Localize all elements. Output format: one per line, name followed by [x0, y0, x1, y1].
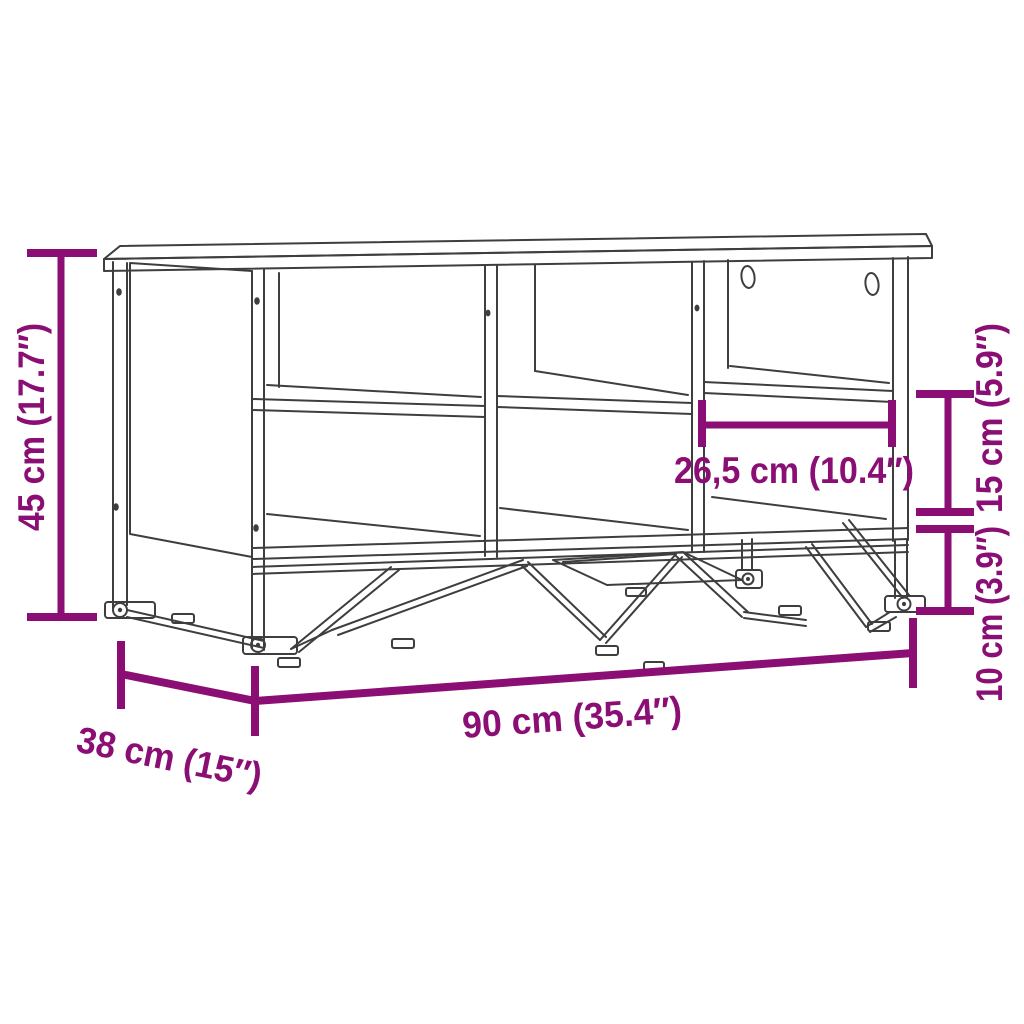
left-side-panel [130, 263, 252, 557]
dimension-overall-width: 90 cm (35.4″) [255, 618, 913, 746]
foot-pad [392, 639, 414, 648]
oval-cutout-left [740, 265, 756, 288]
top-panel [104, 234, 932, 271]
bottom-panel [252, 497, 908, 559]
dimension-overall-height: 45 cm (17.7″) [11, 253, 97, 617]
middle-shelf [252, 265, 893, 417]
screw [253, 524, 259, 532]
back-left-leg [105, 262, 264, 648]
dimension-base-height: 10 cm (3.9″) [916, 526, 1010, 702]
dimension-annotations: 45 cm (17.7″) 15 cm (5.9″) 10 cm (3.9″) … [11, 253, 1010, 797]
diagram-svg: 45 cm (17.7″) 15 cm (5.9″) 10 cm (3.9″) … [0, 0, 1024, 1024]
foot-pad [596, 646, 618, 655]
screw [254, 297, 260, 305]
screw [486, 310, 491, 317]
overall-height-label: 45 cm (17.7″) [11, 323, 52, 531]
screw [695, 305, 700, 312]
screw [116, 288, 122, 296]
dimension-compartment-width: 26,5 cm (10.4″) [674, 400, 914, 491]
dimension-opening-height: 15 cm (5.9″) [916, 323, 1010, 513]
screw [113, 503, 119, 511]
product-dimension-diagram: 45 cm (17.7″) 15 cm (5.9″) 10 cm (3.9″) … [0, 0, 1024, 1024]
overall-depth-label: 38 cm (15″) [73, 719, 265, 797]
base-height-label: 10 cm (3.9″) [969, 526, 1010, 702]
opening-height-label: 15 cm (5.9″) [969, 323, 1010, 513]
right-back-panel [728, 260, 880, 368]
foot-pad [278, 658, 300, 667]
compartment-width-label: 26,5 cm (10.4″) [674, 450, 914, 491]
oval-cutout-right [864, 272, 880, 295]
foot-pad [779, 606, 801, 615]
dimension-overall-depth: 38 cm (15″) [73, 641, 265, 797]
overall-width-label: 90 cm (35.4″) [461, 689, 683, 746]
